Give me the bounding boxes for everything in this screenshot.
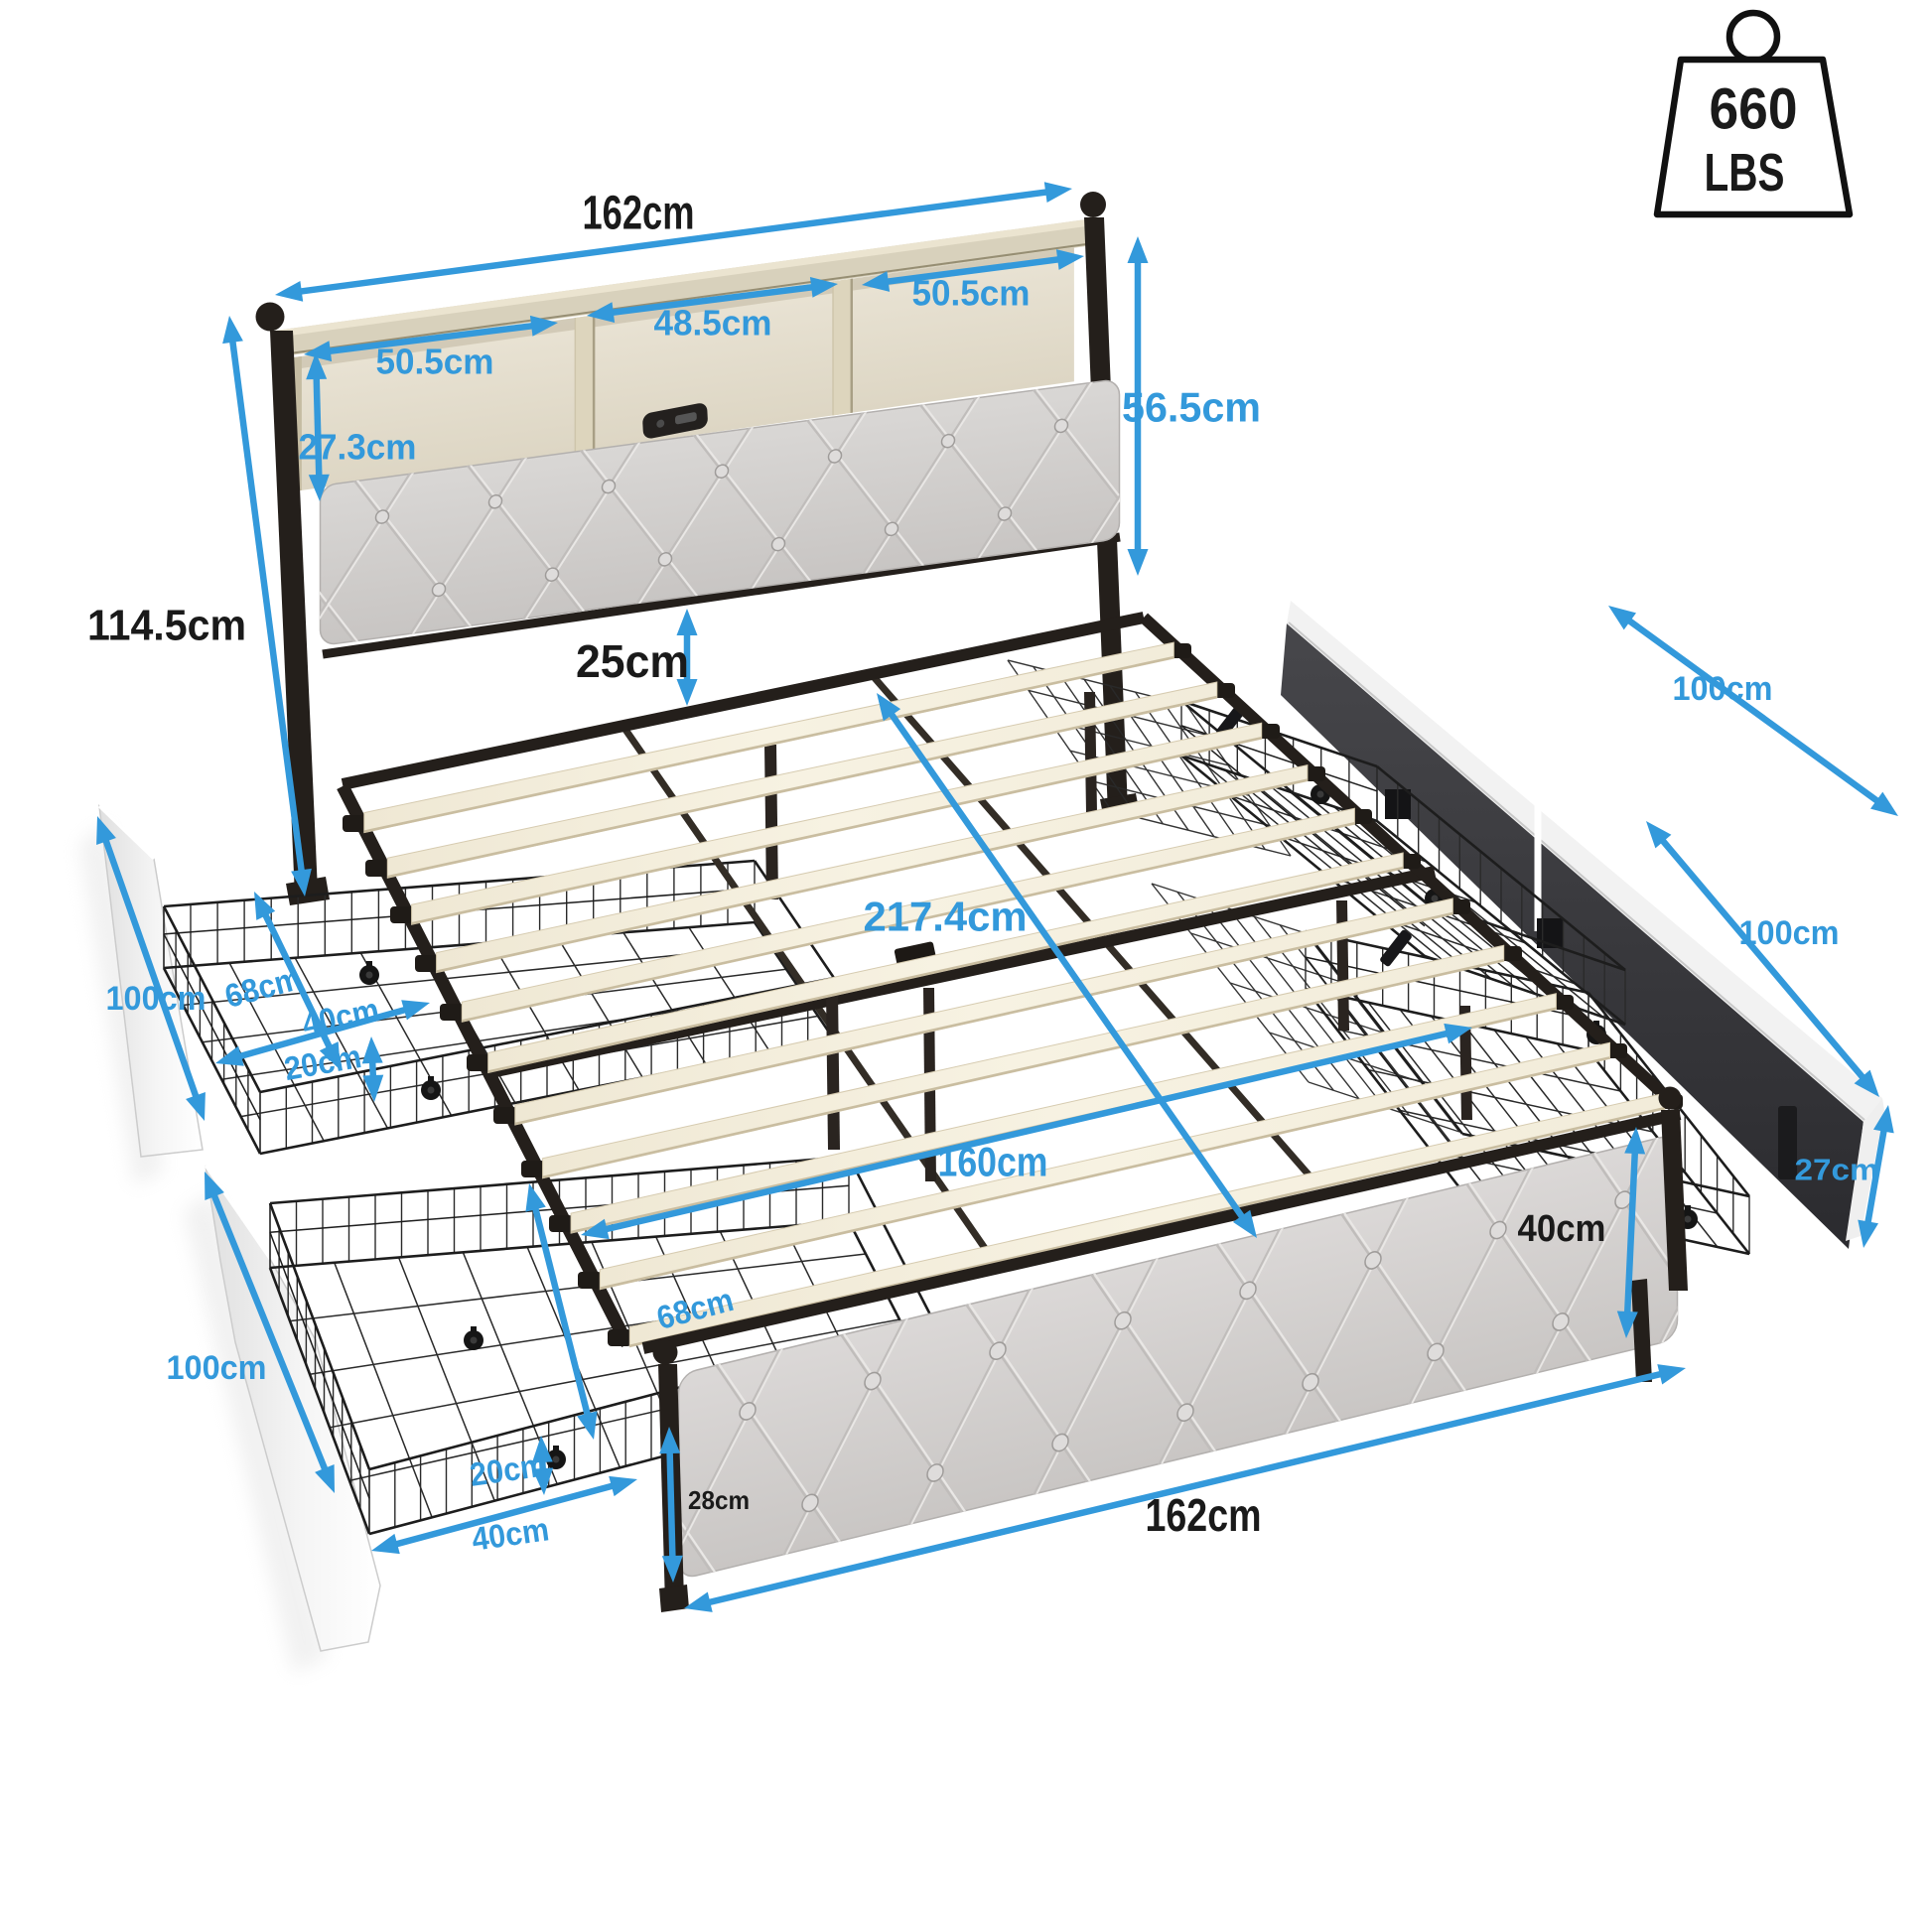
svg-text:160cm: 160cm [938,1139,1048,1185]
svg-text:27cm: 27cm [1795,1153,1879,1187]
svg-text:LBS: LBS [1705,143,1785,203]
svg-text:162cm: 162cm [1146,1489,1262,1541]
svg-text:25cm: 25cm [576,635,689,687]
svg-text:660: 660 [1710,77,1798,142]
svg-text:100cm: 100cm [1673,670,1773,708]
svg-text:27.3cm: 27.3cm [299,427,417,468]
svg-text:100cm: 100cm [167,1349,267,1387]
svg-text:100cm: 100cm [106,980,207,1018]
svg-text:56.5cm: 56.5cm [1122,384,1261,431]
svg-text:100cm: 100cm [1739,914,1840,952]
svg-text:114.5cm: 114.5cm [87,602,246,650]
svg-text:162cm: 162cm [583,188,695,240]
svg-text:50.5cm: 50.5cm [376,342,494,382]
svg-text:28cm: 28cm [688,1485,750,1515]
svg-text:48.5cm: 48.5cm [654,303,772,344]
svg-text:217.4cm: 217.4cm [864,894,1028,940]
svg-text:50.5cm: 50.5cm [912,273,1031,314]
svg-text:40cm: 40cm [1518,1208,1606,1250]
